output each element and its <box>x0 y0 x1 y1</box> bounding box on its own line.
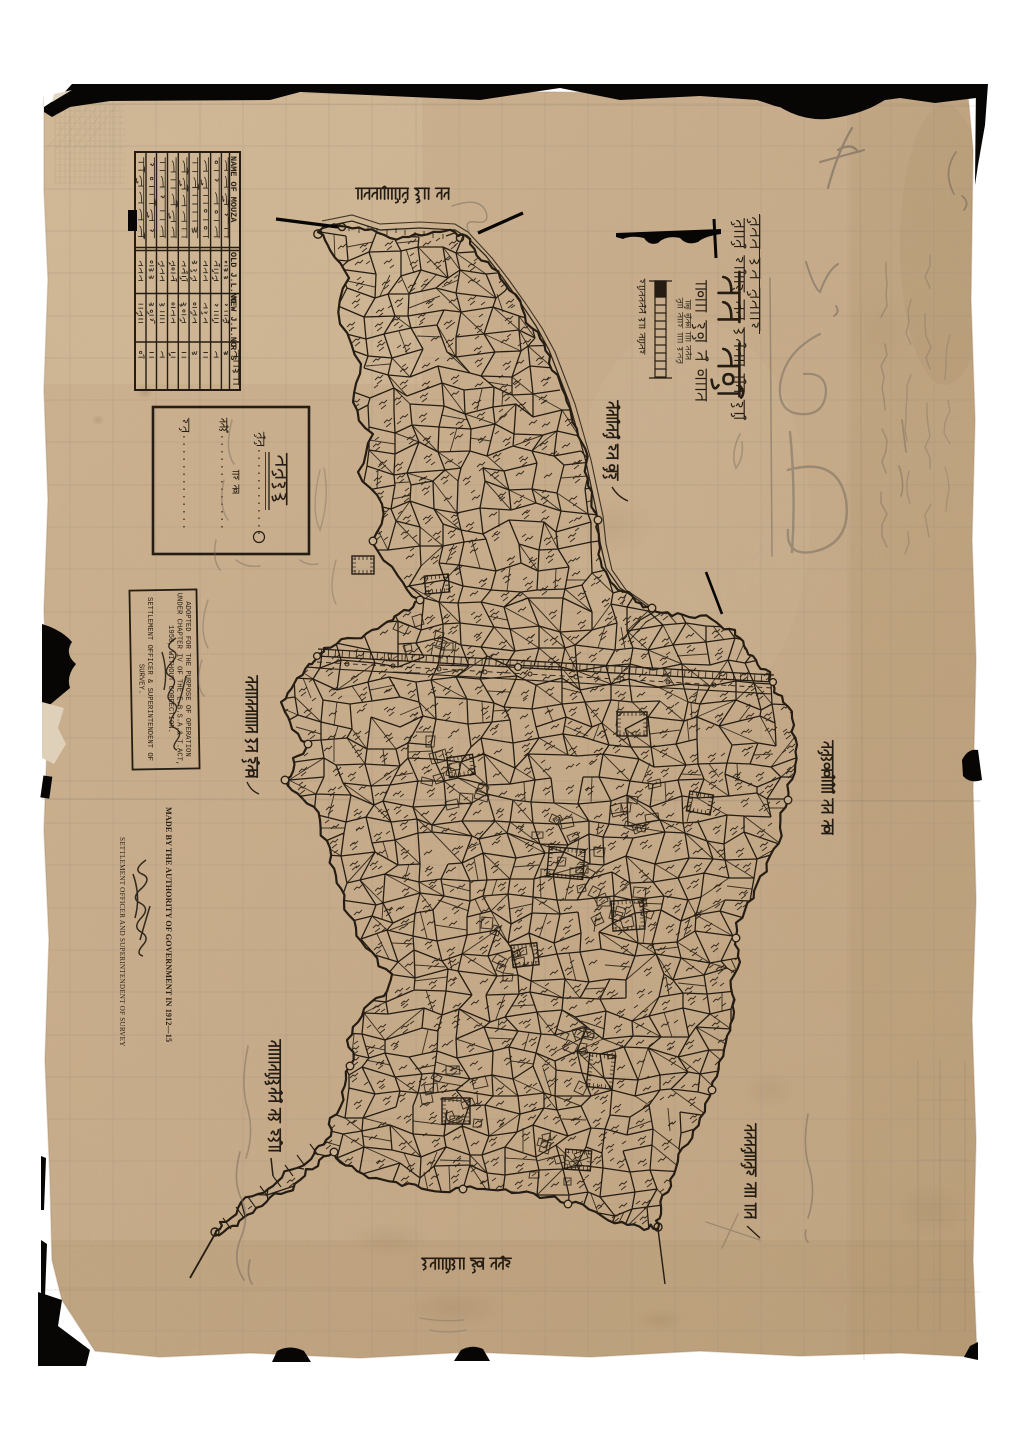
svg-text:SURVEY.: SURVEY. <box>137 664 145 694</box>
svg-text:ADOPTED FOR THE PURPOSE OF OPE: ADOPTED FOR THE PURPOSE OF OPERATION <box>183 601 191 756</box>
svg-text:MADE BY THE AUTHORITY OF GOVER: MADE BY THE AUTHORITY OF GOVERNMENT IN 1… <box>164 807 173 1042</box>
svg-text:NEW J.L.NO: NEW J.L.NO <box>228 296 238 347</box>
svg-text:SETTLEMENT OFFICER AND SUPERIN: SETTLEMENT OFFICER AND SUPERINTENDENT OF… <box>118 837 126 1047</box>
svg-text:SETTLEMENT OFFICER & SUPERINTE: SETTLEMENT OFFICER & SUPERINTENDENT OF <box>145 597 153 761</box>
svg-text:NAME OF MOUZA: NAME OF MOUZA <box>228 156 238 223</box>
svg-text:UNDER CHAPTER IV OF THE E.B.S.: UNDER CHAPTER IV OF THE E.B.S.A.& T.ACT, <box>175 593 183 766</box>
